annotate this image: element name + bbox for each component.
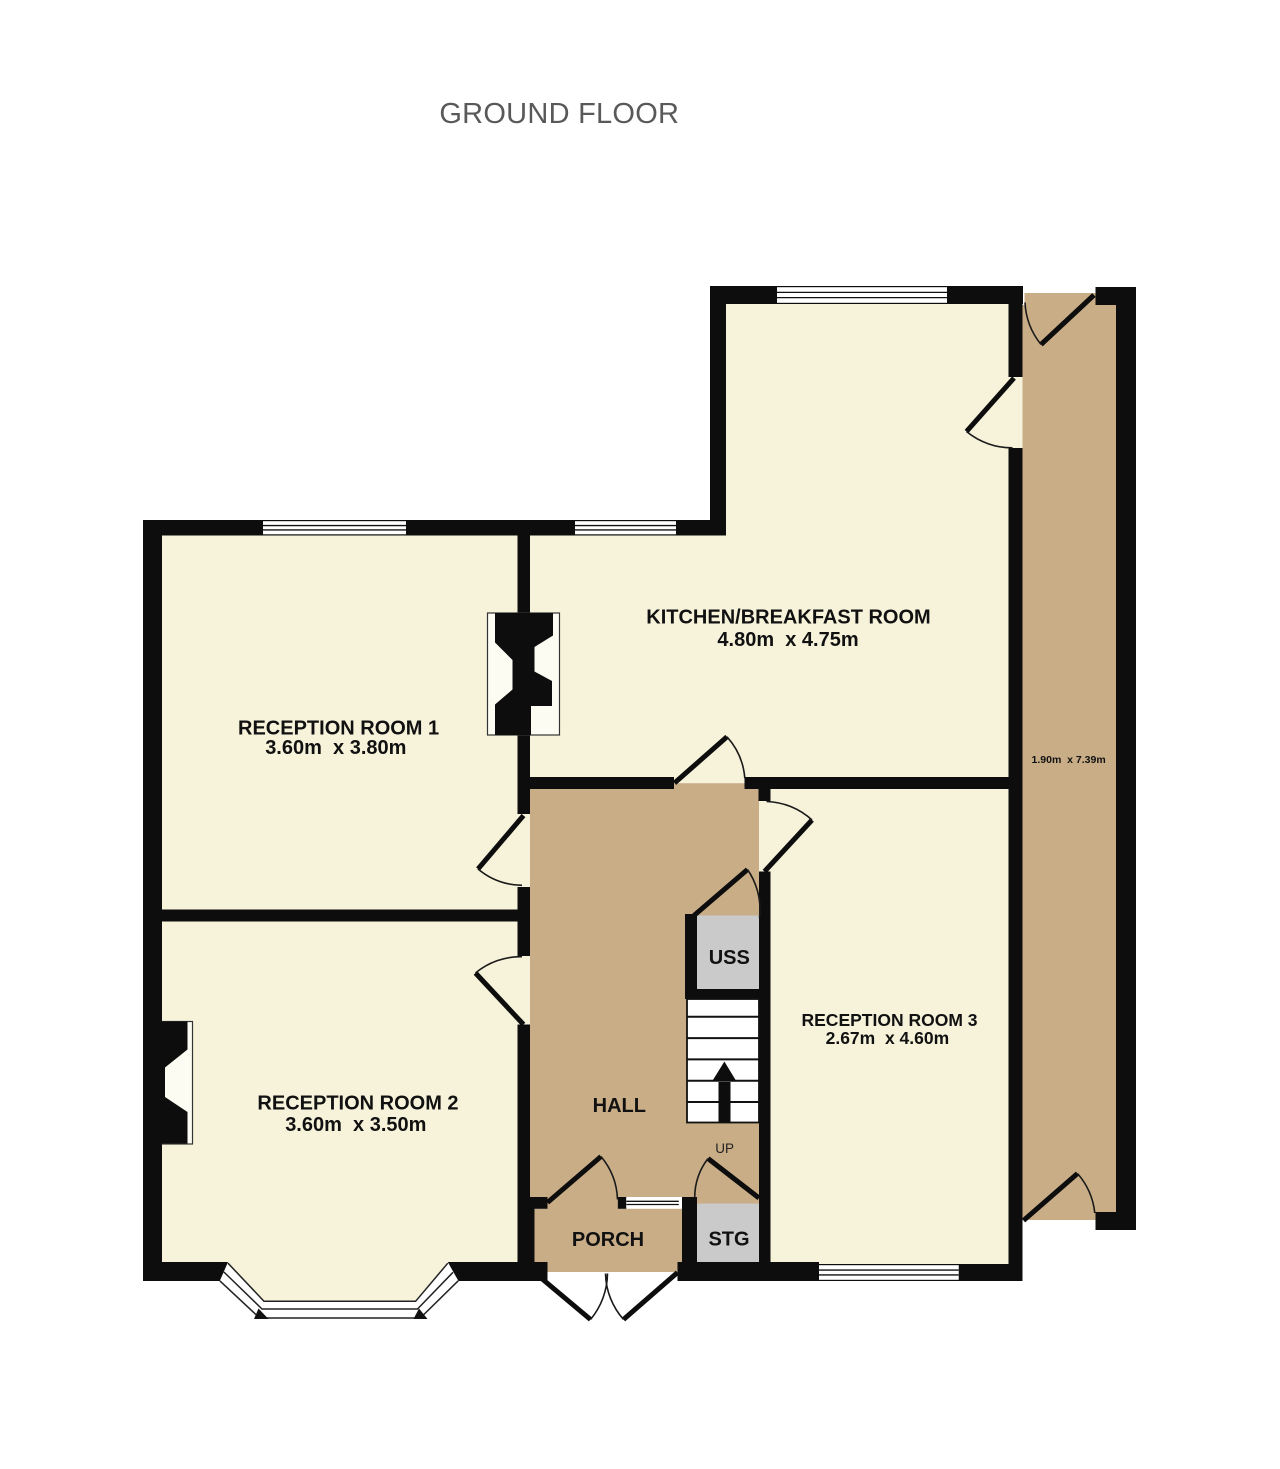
svg-text:RECEPTION ROOM 3: RECEPTION ROOM 3 [802, 1010, 978, 1030]
svg-text:1.90m x 7.39m: 1.90m x 7.39m [1032, 754, 1106, 766]
svg-text:KITCHEN/BREAKFAST ROOM: KITCHEN/BREAKFAST ROOM [646, 607, 930, 629]
svg-text:HALL: HALL [593, 1095, 646, 1117]
svg-text:USS: USS [709, 947, 750, 969]
svg-text:PORCH: PORCH [572, 1229, 644, 1251]
svg-text:STG: STG [708, 1229, 749, 1251]
svg-text:3.60m x 3.50m: 3.60m x 3.50m [285, 1114, 426, 1136]
svg-text:2.67m x 4.60m: 2.67m x 4.60m [826, 1028, 950, 1048]
svg-text:3.60m x 3.80m: 3.60m x 3.80m [265, 737, 406, 759]
svg-text:4.80m x 4.75m: 4.80m x 4.75m [717, 629, 858, 651]
svg-text:GROUND FLOOR: GROUND FLOOR [439, 98, 679, 130]
svg-text:RECEPTION ROOM 2: RECEPTION ROOM 2 [257, 1092, 458, 1114]
svg-text:UP: UP [715, 1141, 734, 1156]
